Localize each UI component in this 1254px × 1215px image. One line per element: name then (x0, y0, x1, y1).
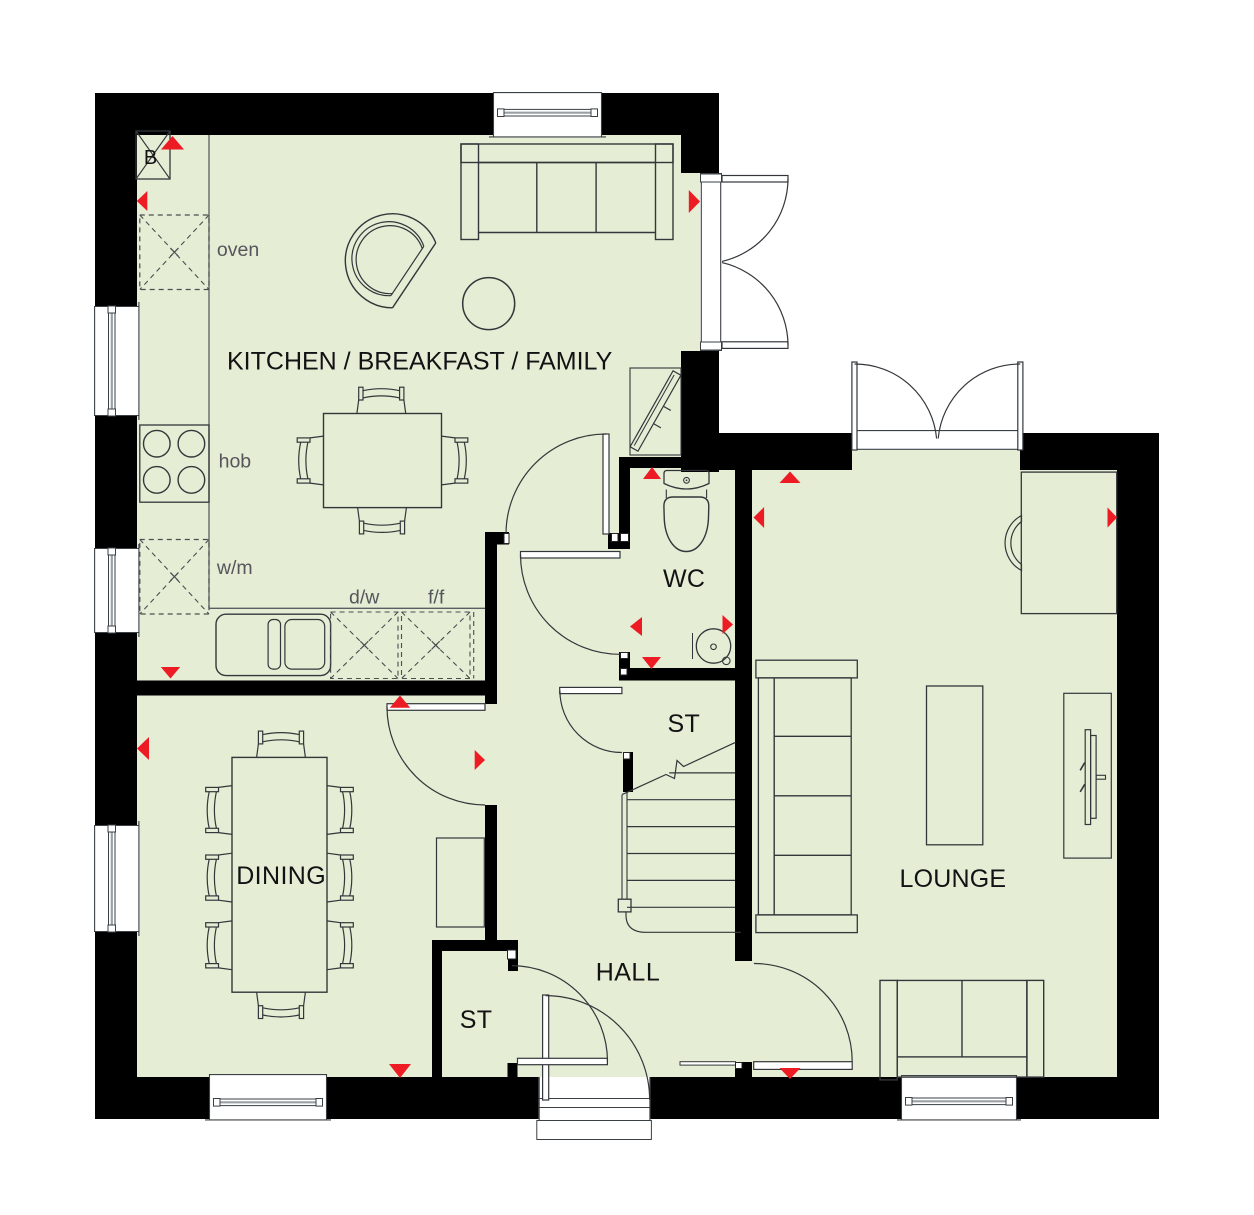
svg-text:w/m: w/m (216, 557, 253, 579)
svg-text:DINING: DINING (236, 862, 326, 890)
svg-text:ST: ST (460, 1006, 493, 1034)
svg-text:f/f: f/f (428, 587, 445, 609)
svg-text:d/w: d/w (349, 587, 380, 609)
svg-text:B: B (144, 147, 157, 169)
svg-text:ST: ST (668, 710, 701, 738)
svg-text:HALL: HALL (596, 959, 661, 987)
svg-text:KITCHEN / BREAKFAST / FAMILY: KITCHEN / BREAKFAST / FAMILY (227, 347, 613, 375)
svg-text:oven: oven (217, 239, 259, 261)
svg-text:hob: hob (219, 451, 252, 473)
svg-text:WC: WC (663, 565, 705, 593)
svg-text:LOUNGE: LOUNGE (900, 865, 1007, 893)
